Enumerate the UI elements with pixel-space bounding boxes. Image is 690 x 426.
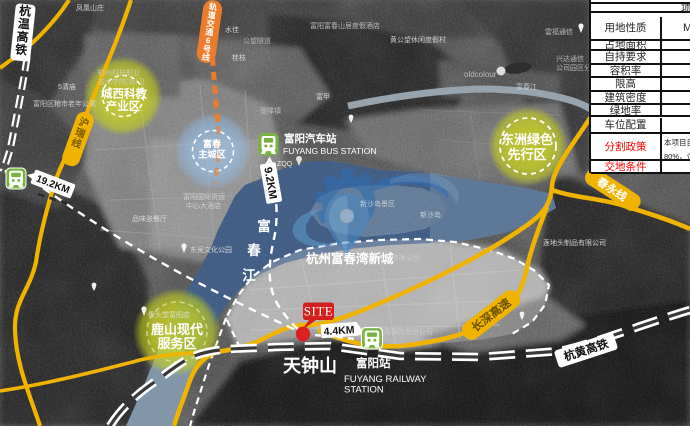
- svg-text:产业区: 产业区: [106, 99, 141, 113]
- svg-text:新沙岛景区: 新沙岛景区: [360, 199, 395, 208]
- svg-text:黄公望休闲度假村: 黄公望休闲度假村: [390, 35, 446, 44]
- svg-text:富阳站: 富阳站: [356, 356, 391, 370]
- svg-text:桂枝: 桂枝: [232, 53, 246, 62]
- svg-text:STATION: STATION: [344, 385, 384, 396]
- svg-text:骨头堂富阳店: 骨头堂富阳店: [148, 310, 190, 319]
- svg-text:东洲绿色: 东洲绿色: [501, 132, 553, 147]
- svg-text:新沙岛: 新沙岛: [420, 210, 441, 219]
- svg-text:oldcolour: oldcolour: [464, 70, 497, 79]
- svg-text:莲地头制品有限公司: 莲地头制品有限公司: [543, 238, 606, 247]
- svg-text:富阳汽车站: 富阳汽车站: [284, 132, 337, 145]
- svg-text:杭州科技职业: 杭州科技职业: [98, 68, 140, 77]
- svg-text:FUYANG RAILWAY: FUYANG RAILWAY: [344, 374, 427, 385]
- svg-text:天钟山: 天钟山: [283, 355, 337, 376]
- svg-text:城西科教: 城西科教: [101, 87, 147, 101]
- svg-text:中心大酒店: 中心大酒店: [186, 201, 221, 210]
- svg-text:富阳区粮市老年公寓: 富阳区粮市老年公寓: [33, 99, 96, 108]
- svg-text:富阳富春山居度假酒店: 富阳富春山居度假酒店: [310, 21, 380, 30]
- svg-text:铁: 铁: [14, 41, 28, 57]
- svg-text:水佳: 水佳: [225, 25, 239, 34]
- svg-text:富春: 富春: [203, 138, 222, 149]
- svg-text:鹿山现代: 鹿山现代: [151, 322, 203, 337]
- svg-text:公司园区分: 公司园区分: [556, 63, 591, 72]
- svg-text:富甲: 富甲: [316, 92, 330, 101]
- svg-text:主城区: 主城区: [198, 149, 226, 160]
- svg-text:先行区: 先行区: [507, 147, 546, 162]
- svg-text:ZQQ: ZQQ: [277, 161, 293, 168]
- svg-text:品味张餐厅: 品味张餐厅: [132, 214, 167, 223]
- svg-text:SITE: SITE: [304, 304, 333, 319]
- svg-text:富阳国际货运: 富阳国际货运: [183, 192, 225, 201]
- svg-text:富: 富: [257, 218, 271, 234]
- svg-text:寿保险股份公司: 寿保险股份公司: [384, 327, 433, 336]
- svg-text:公望隧道: 公望隧道: [243, 36, 271, 45]
- svg-text:受降镇: 受降镇: [260, 106, 281, 115]
- svg-text:服务区: 服务区: [157, 336, 196, 351]
- svg-text:5清庙: 5清庙: [58, 82, 76, 91]
- svg-text:技术学院(南门): 技术学院(南门): [98, 77, 145, 86]
- svg-text:富春江: 富春江: [516, 82, 537, 91]
- svg-text:雲福通信: 雲福通信: [545, 27, 573, 36]
- svg-text:兴达通信: 兴达通信: [556, 54, 584, 63]
- svg-text:杭州富春湾新城: 杭州富春湾新城: [306, 251, 394, 266]
- svg-text:春: 春: [246, 242, 261, 258]
- svg-text:江: 江: [242, 267, 256, 283]
- svg-text:FUYANG BUS STATION: FUYANG BUS STATION: [283, 146, 377, 156]
- svg-text:凤凰山庄: 凤凰山庄: [76, 3, 104, 12]
- svg-text:东吴文化公园: 东吴文化公园: [190, 245, 232, 254]
